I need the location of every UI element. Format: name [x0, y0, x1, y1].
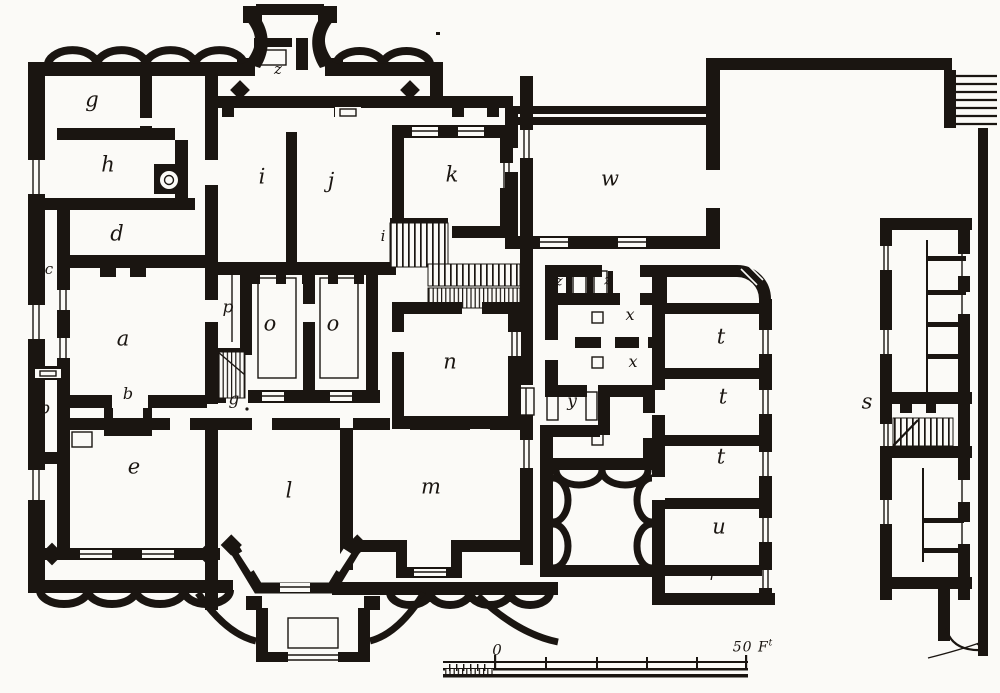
room-label-z: z [274, 62, 282, 77]
floor-plan-drawing [0, 0, 1000, 693]
gate-steps [956, 76, 997, 124]
room-label-a: a [117, 328, 130, 349]
room-label-g: g [229, 392, 240, 409]
room-label-g: g [85, 89, 98, 110]
room-label-u: u [712, 516, 726, 537]
room-label-k: k [446, 164, 459, 185]
room-label-t: t [717, 326, 725, 347]
stove [154, 164, 184, 194]
room-label-x: x [628, 354, 637, 370]
entrance-porch [237, 4, 343, 76]
room-label-s: s [862, 391, 873, 412]
room-label-z: z [555, 274, 562, 288]
room-label-t: t [717, 446, 725, 467]
scale-end-sup: t [769, 639, 774, 649]
scale-zero-label: 0 [492, 641, 502, 659]
room-label-r: r [709, 568, 716, 583]
room-label-c: c [45, 262, 53, 277]
room-label-b: b [123, 386, 133, 402]
room-label-i: i [259, 166, 266, 187]
room-label-y: y [567, 394, 577, 411]
room-label-o: o [264, 313, 277, 334]
room-label-d: d [110, 223, 123, 244]
central-block-walls [205, 76, 534, 610]
room-label-l: l [286, 480, 293, 501]
room-label-e: e [128, 456, 140, 477]
room-label-b: b [40, 401, 51, 418]
room-label-x: x [625, 307, 634, 323]
room-label-p: p [223, 300, 234, 317]
room-label-n: n [443, 351, 457, 372]
scale-end-label: 50 Ft [733, 639, 774, 656]
room-label-h: h [101, 154, 115, 175]
room-label-o: o [327, 313, 340, 334]
scale-end-text: 50 F [733, 639, 769, 655]
stable-wing-walls [880, 218, 972, 641]
room-label-z: z [604, 273, 611, 287]
scale-bar [443, 655, 748, 678]
room-label-i: i [381, 229, 386, 244]
room-label-w: w [601, 168, 619, 189]
room-label-t: t [719, 386, 727, 407]
floor-plan-figure: zghdcabbeijpoogkinlmwzzxxyttturs 0 50 Ft [0, 0, 1000, 693]
room-label-j: j [328, 170, 335, 191]
room-label-m: m [421, 476, 441, 497]
t-block-walls [652, 277, 775, 605]
